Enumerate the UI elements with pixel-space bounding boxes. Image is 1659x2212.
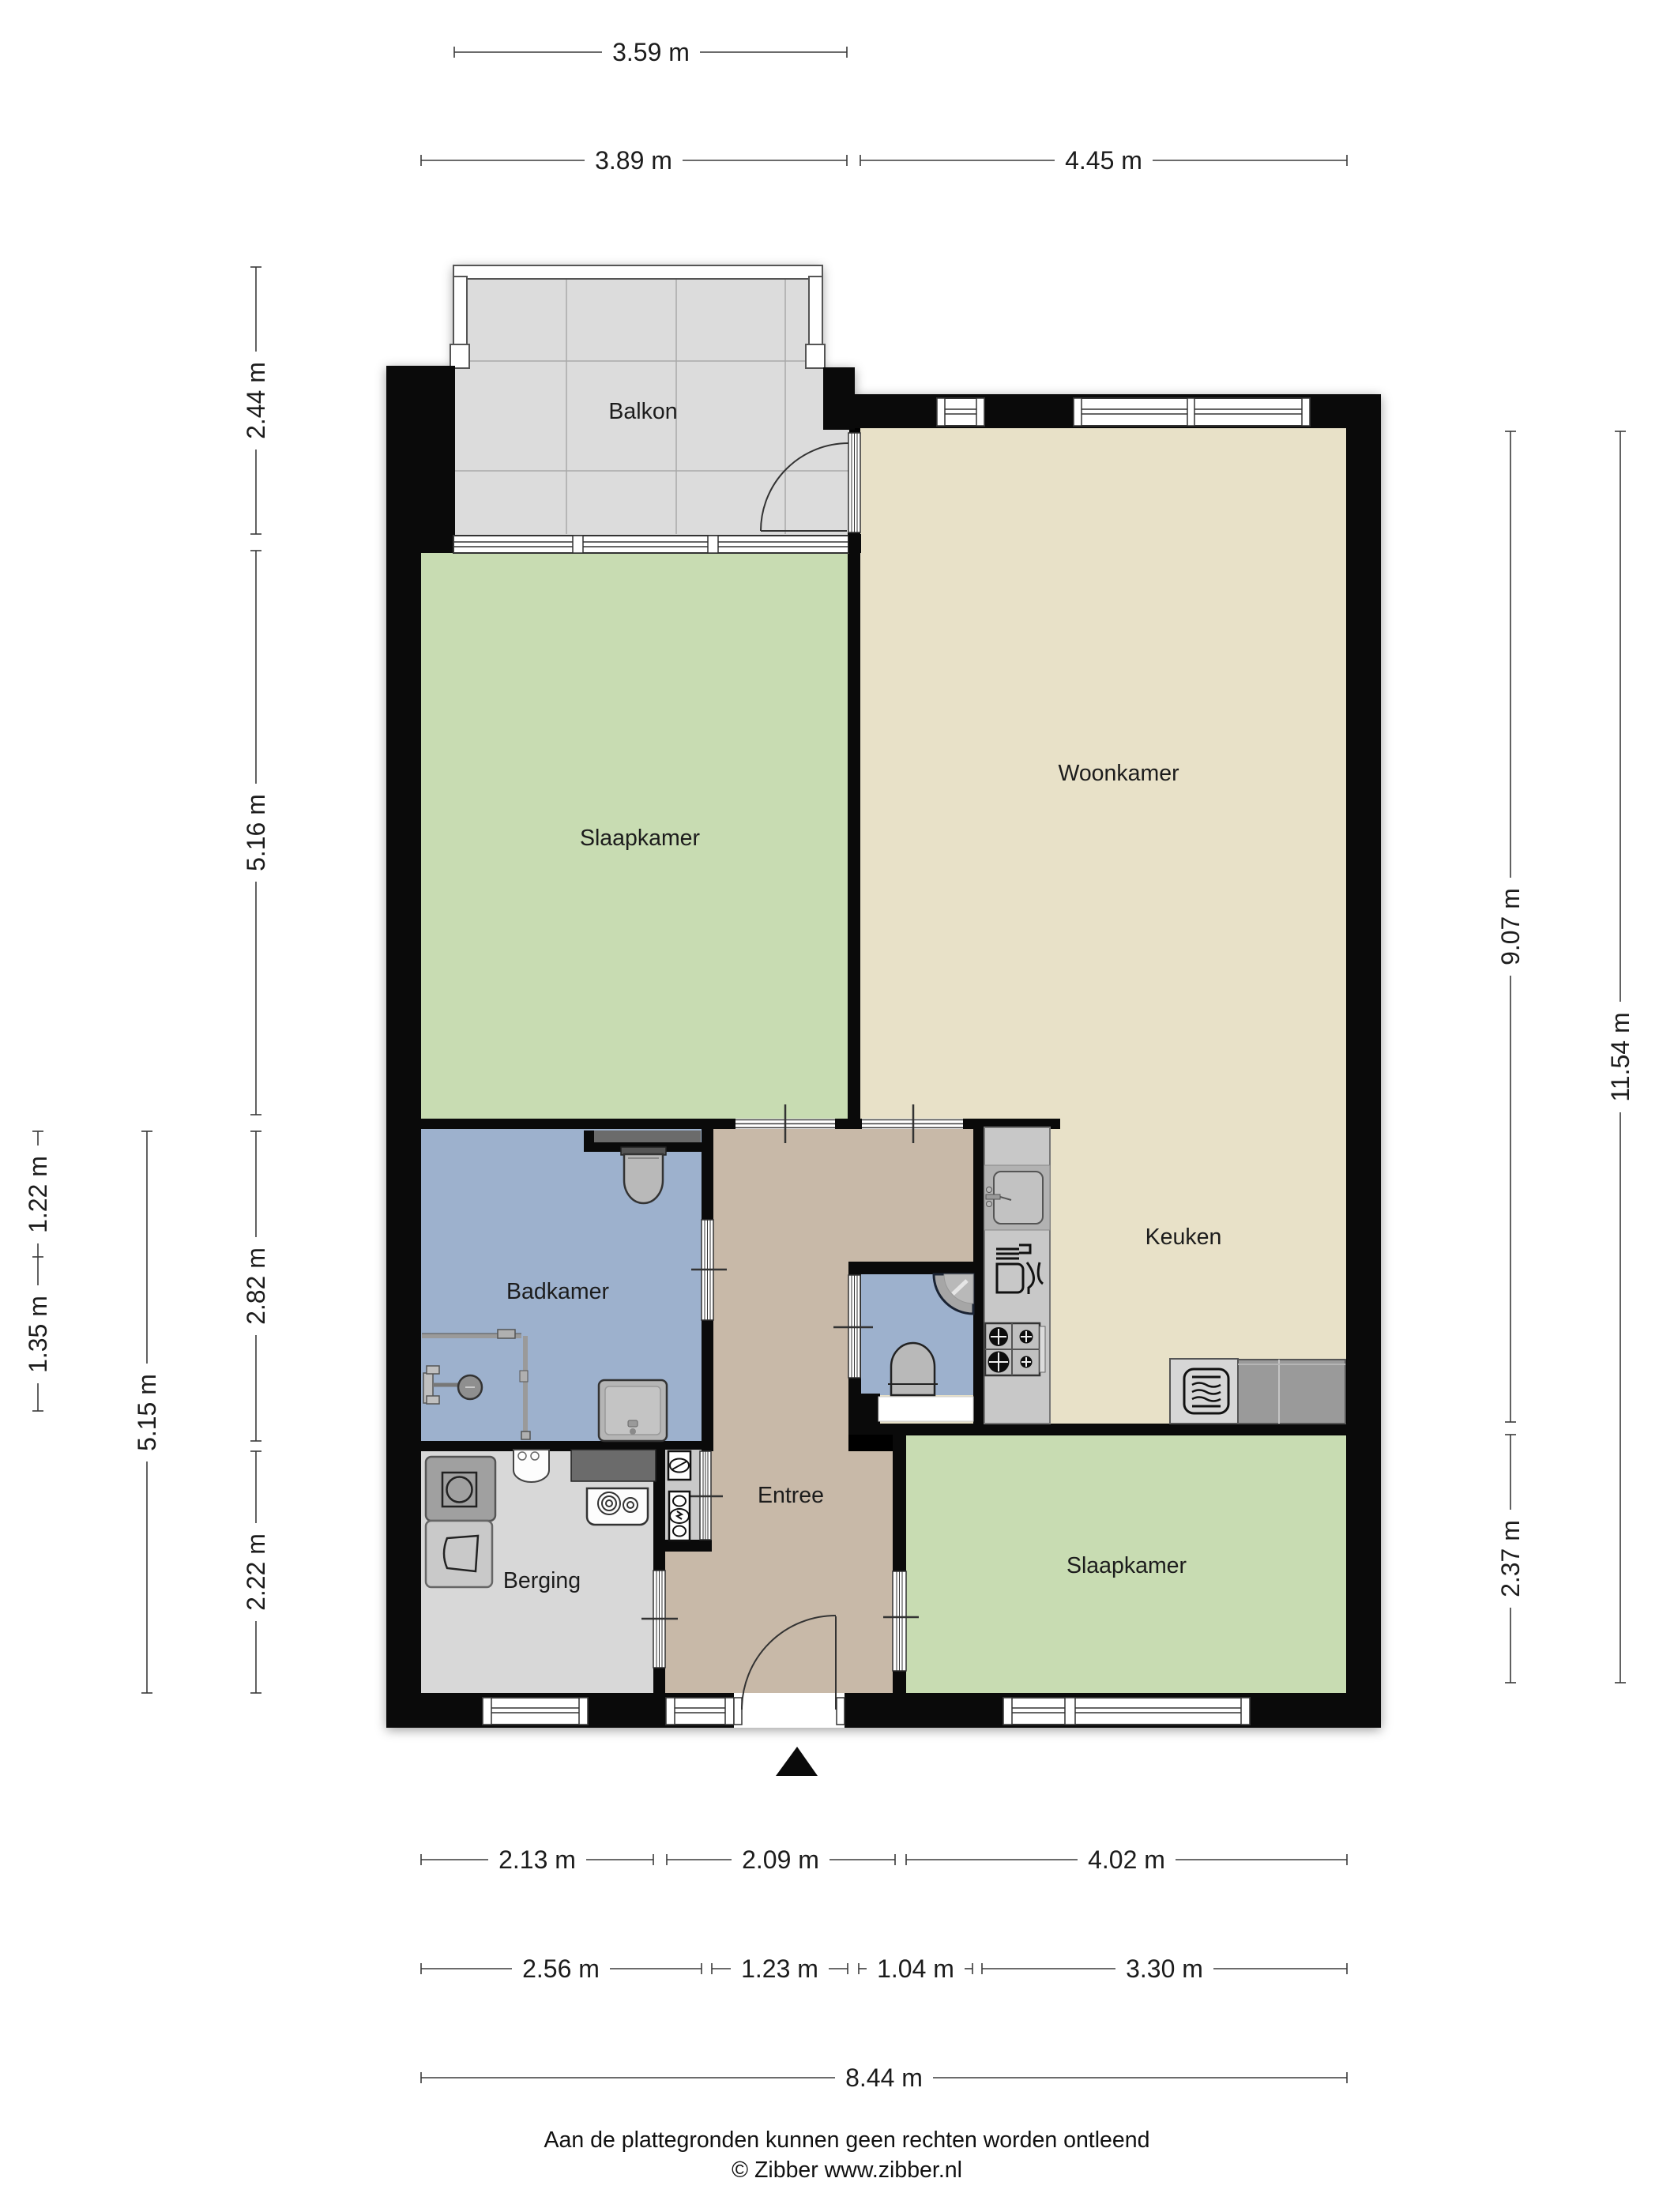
svg-text:2.82 m: 2.82 m (242, 1247, 270, 1325)
svg-text:2.09 m: 2.09 m (742, 1845, 819, 1874)
svg-text:Entree: Entree (758, 1483, 824, 1508)
svg-text:2.22 m: 2.22 m (242, 1533, 270, 1611)
svg-text:Woonkamer: Woonkamer (1058, 761, 1179, 786)
svg-text:3.89 m: 3.89 m (595, 146, 672, 175)
svg-text:2.56 m: 2.56 m (522, 1954, 600, 1983)
svg-text:© Zibber www.zibber.nl: © Zibber www.zibber.nl (732, 2157, 962, 2183)
svg-text:Keuken: Keuken (1145, 1224, 1222, 1250)
svg-text:1.35 m: 1.35 m (24, 1296, 52, 1373)
svg-text:5.16 m: 5.16 m (242, 794, 270, 871)
svg-text:Badkamer: Badkamer (506, 1279, 609, 1304)
svg-text:2.37 m: 2.37 m (1496, 1520, 1525, 1597)
svg-text:1.23 m: 1.23 m (741, 1954, 818, 1983)
svg-text:Slaapkamer: Slaapkamer (580, 826, 701, 851)
svg-text:4.02 m: 4.02 m (1088, 1845, 1165, 1874)
svg-text:3.30 m: 3.30 m (1126, 1954, 1203, 1983)
svg-text:5.15 m: 5.15 m (133, 1374, 161, 1451)
svg-text:11.54 m: 11.54 m (1606, 1012, 1635, 1101)
svg-text:4.45 m: 4.45 m (1065, 146, 1142, 175)
svg-text:9.07 m: 9.07 m (1496, 888, 1525, 965)
svg-text:Berging: Berging (503, 1568, 581, 1593)
svg-text:Slaapkamer: Slaapkamer (1066, 1553, 1187, 1578)
svg-text:2.44 m: 2.44 m (242, 362, 270, 439)
svg-text:1.22 m: 1.22 m (24, 1156, 52, 1233)
svg-text:1.04 m: 1.04 m (877, 1954, 954, 1983)
svg-text:Aan de plattegronden kunnen ge: Aan de plattegronden kunnen geen rechten… (544, 2127, 1150, 2153)
svg-text:2.13 m: 2.13 m (498, 1845, 576, 1874)
svg-text:Balkon: Balkon (608, 399, 677, 424)
svg-text:8.44 m: 8.44 m (845, 2063, 923, 2092)
svg-text:3.59 m: 3.59 m (612, 38, 690, 66)
